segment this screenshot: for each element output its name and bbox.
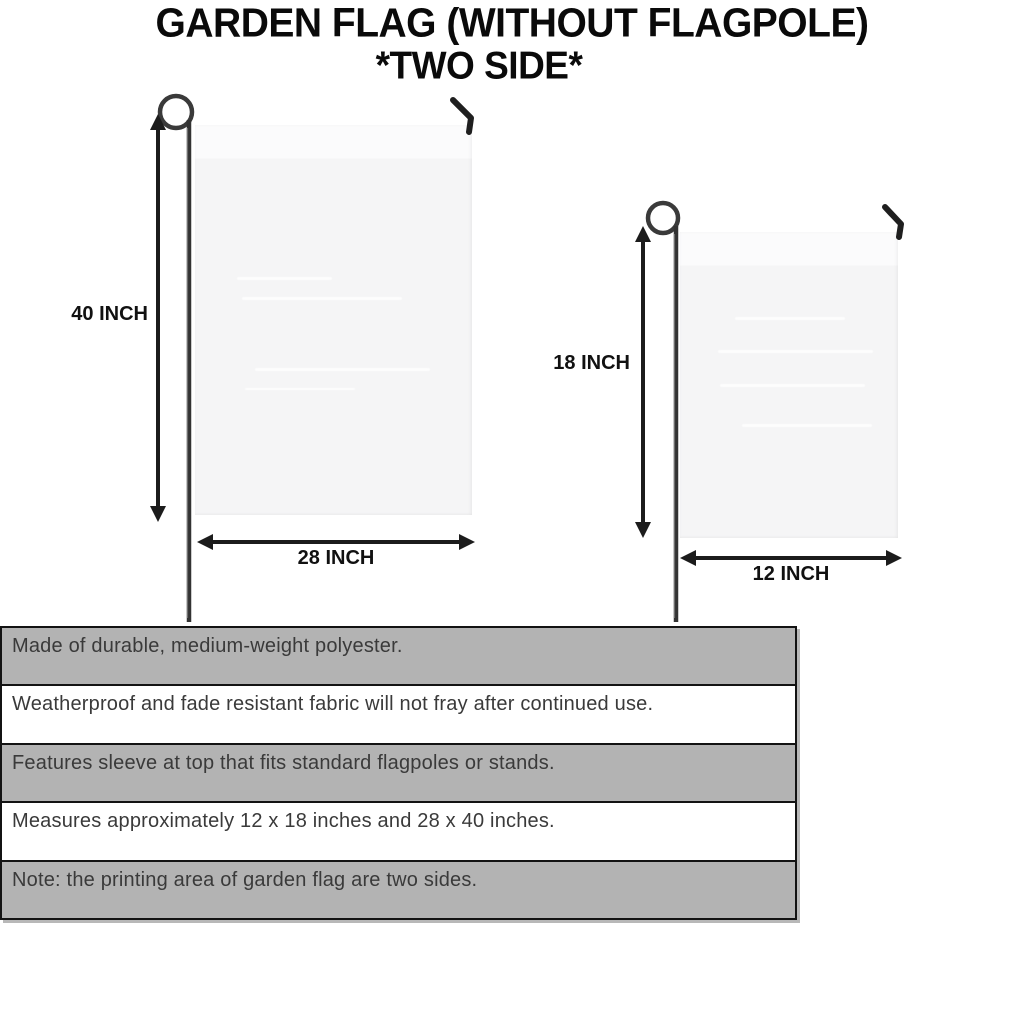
small-flag-height-label: 18 INCH — [533, 352, 630, 375]
large-flag-hook-icon — [446, 93, 482, 139]
large-flag-fabric — [195, 125, 472, 515]
fold-line — [242, 297, 402, 300]
fold-line — [255, 368, 430, 371]
spec-row-sleeve: Features sleeve at top that fits standar… — [2, 745, 795, 803]
fold-line — [245, 388, 355, 390]
large-flag-height-arrow — [146, 114, 170, 522]
spec-row-text: Measures approximately 12 x 18 inches an… — [12, 810, 555, 832]
fold-line — [237, 277, 332, 280]
large-flag-height-label: 40 INCH — [40, 303, 148, 326]
title-line-1: GARDEN FLAG (WITHOUT FLAGPOLE) — [0, 1, 1024, 47]
small-flag-hook-icon — [878, 200, 912, 244]
spec-row-measurements: Measures approximately 12 x 18 inches an… — [2, 803, 795, 861]
small-flag-height-arrow — [632, 226, 654, 538]
spec-row-text: Features sleeve at top that fits standar… — [12, 752, 555, 774]
spec-table: Made of durable, medium-weight polyester… — [0, 626, 797, 920]
spec-row-text: Weatherproof and fade resistant fabric w… — [12, 693, 653, 715]
page-title: GARDEN FLAG (WITHOUT FLAGPOLE) *TWO SIDE… — [0, 2, 1024, 87]
large-flag-width-label: 28 INCH — [197, 547, 475, 570]
fold-line — [720, 384, 865, 387]
spec-row-weatherproof: Weatherproof and fade resistant fabric w… — [2, 686, 795, 744]
small-flag-width-label: 12 INCH — [680, 563, 902, 586]
garden-flag-size-diagram: GARDEN FLAG (WITHOUT FLAGPOLE) *TWO SIDE… — [0, 0, 1024, 1024]
fold-line — [742, 424, 872, 427]
small-flag-fabric — [680, 232, 898, 538]
fold-line — [718, 350, 873, 353]
fold-line — [735, 317, 845, 320]
spec-row-material: Made of durable, medium-weight polyester… — [2, 628, 795, 686]
spec-row-note: Note: the printing area of garden flag a… — [2, 862, 795, 918]
title-line-2: *TWO SIDE* — [0, 44, 991, 88]
spec-row-text: Made of durable, medium-weight polyester… — [12, 635, 403, 657]
spec-row-text: Note: the printing area of garden flag a… — [12, 869, 477, 891]
